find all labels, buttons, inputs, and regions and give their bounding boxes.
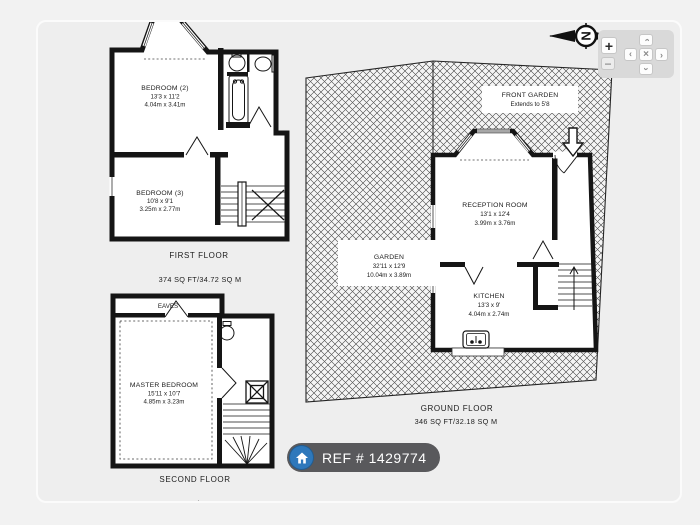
room-dims-bedroom3-imperial: 10'8 x 9'1 <box>147 198 174 205</box>
floorplan-panel: BEDROOM (2) 13'3 x 11'2 4.04m x 3.41m BE… <box>36 20 682 503</box>
ground-floor-walls <box>433 131 596 356</box>
front-garden-label-box <box>482 86 578 113</box>
eaves-label: EAVES <box>158 303 178 310</box>
ground-floor-title: GROUND FLOOR <box>421 404 494 413</box>
pan-left-button[interactable]: › <box>624 48 637 61</box>
room-dims-bedroom2-metric: 4.04m x 3.41m <box>145 102 186 109</box>
room-label-bedroom3: BEDROOM (3) <box>136 190 184 197</box>
first-floor-area: 374 SQ FT/34.72 SQ M <box>159 275 242 284</box>
pan-up-button[interactable]: › <box>639 34 653 46</box>
zoom-in-button[interactable]: + <box>601 37 617 54</box>
room-dims-reception-imperial: 13'1 x 12'4 <box>480 211 510 218</box>
viewer-stage: BEDROOM (2) 13'3 x 11'2 4.04m x 3.41m BE… <box>0 0 700 525</box>
room-dims-kitchen-metric: 4.04m x 2.74m <box>469 311 510 318</box>
ref-number-label: REF # 1429774 <box>322 450 427 466</box>
first-floor-plan: BEDROOM (2) 13'3 x 11'2 4.04m x 3.41m BE… <box>100 20 300 290</box>
home-icon <box>289 445 314 470</box>
room-label-kitchen: KITCHEN <box>473 293 504 300</box>
room-dims-kitchen-imperial: 13'3 x 9' <box>478 302 501 309</box>
first-floor-walls <box>112 20 287 239</box>
chevron-left-icon: › <box>629 50 632 60</box>
first-floor-title: FIRST FLOOR <box>169 251 228 260</box>
pan-down-button[interactable]: › <box>639 63 653 75</box>
second-floor-plan: EAVES MASTER BEDROOM 15'11 x 10'7 4.85m … <box>100 290 300 503</box>
front-garden-note: Extends to 5'8 <box>510 101 550 108</box>
chevron-right-icon: › <box>660 50 663 60</box>
room-label-bedroom2: BEDROOM (2) <box>141 85 189 92</box>
room-dims-master-metric: 4.85m x 3.23m <box>144 399 185 406</box>
room-dims-master-imperial: 15'11 x 10'7 <box>148 391 181 398</box>
skylight-icon <box>246 381 268 403</box>
room-label-front-garden: FRONT GARDEN <box>502 92 559 99</box>
kitchen-sink-icon <box>463 331 489 348</box>
room-dims-garden-metric: 10.04m x 3.89m <box>367 272 411 279</box>
minus-icon: − <box>604 57 611 71</box>
plus-icon: + <box>605 38 613 54</box>
zoom-out-button[interactable]: − <box>601 57 615 70</box>
center-x-icon: × <box>643 49 649 60</box>
room-label-garden: GARDEN <box>374 254 404 261</box>
pan-center-button[interactable]: × <box>639 48 653 61</box>
room-dims-bedroom2-imperial: 13'3 x 11'2 <box>150 94 180 101</box>
pan-right-button[interactable]: › <box>655 48 668 61</box>
chevron-down-icon: › <box>641 68 651 71</box>
room-dims-reception-metric: 3.99m x 3.76m <box>475 220 516 227</box>
room-label-master-bedroom: MASTER BEDROOM <box>130 382 198 389</box>
second-floor-title: SECOND FLOOR <box>159 475 230 484</box>
ground-floor-area: 346 SQ FT/32.18 SQ M <box>415 417 498 426</box>
room-dims-bedroom3-metric: 3.25m x 2.77m <box>140 206 181 213</box>
ground-floor-plan: FRONT GARDEN Extends to 5'8 GARDEN 32'11… <box>300 50 635 430</box>
room-label-reception: RECEPTION ROOM <box>462 202 528 209</box>
room-dims-garden-imperial: 32'11 x 12'9 <box>373 263 406 270</box>
compass-north-letter: N <box>579 31 594 40</box>
ref-badge: REF # 1429774 <box>287 443 440 472</box>
chevron-up-icon: › <box>641 39 651 42</box>
map-controls: + − › › × › › <box>598 30 674 78</box>
second-floor-area-clipped: 168 SQ FT/15.66 SQ M <box>159 499 242 503</box>
